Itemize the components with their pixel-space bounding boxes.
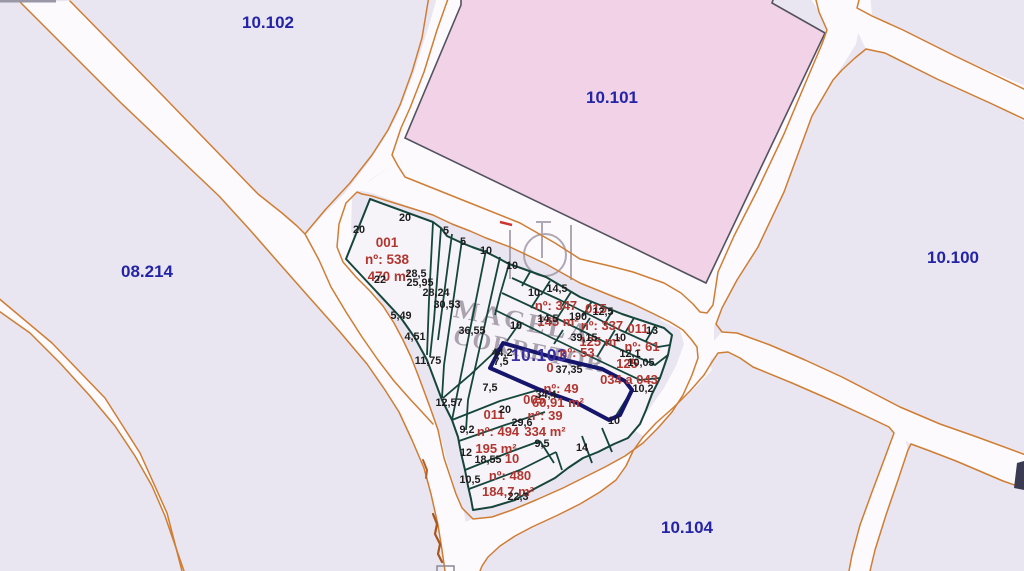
svg-text:9,2: 9,2 <box>459 424 474 436</box>
svg-text:10,2: 10,2 <box>632 383 653 395</box>
svg-text:10: 10 <box>614 332 626 344</box>
svg-text:13: 13 <box>646 325 658 337</box>
svg-text:0: 0 <box>546 360 553 375</box>
svg-text:10: 10 <box>480 245 492 257</box>
svg-text:20: 20 <box>353 224 365 236</box>
svg-text:30,53: 30,53 <box>433 299 460 311</box>
svg-text:22: 22 <box>374 274 386 286</box>
svg-text:10,5: 10,5 <box>459 474 480 486</box>
svg-text:22,3: 22,3 <box>507 491 528 503</box>
svg-text:10: 10 <box>510 320 522 332</box>
svg-text:29,6: 29,6 <box>511 417 532 429</box>
svg-text:10: 10 <box>505 451 519 466</box>
svg-text:10.104: 10.104 <box>661 518 714 537</box>
svg-text:12,57: 12,57 <box>435 397 462 409</box>
svg-text:20: 20 <box>399 212 411 224</box>
svg-text:20: 20 <box>499 404 511 416</box>
svg-text:08.214: 08.214 <box>121 262 174 281</box>
svg-text:10.101: 10.101 <box>586 88 638 107</box>
svg-text:14: 14 <box>576 442 588 454</box>
svg-text:5: 5 <box>443 225 449 237</box>
svg-text:18,55: 18,55 <box>474 454 501 466</box>
svg-text:10: 10 <box>528 287 540 299</box>
svg-text:4,51: 4,51 <box>404 331 425 343</box>
svg-text:11,75: 11,75 <box>415 355 441 367</box>
svg-text:10: 10 <box>608 415 620 427</box>
svg-text:nº: 53: nº: 53 <box>559 345 594 360</box>
svg-text:nº: 39: nº: 39 <box>527 408 562 423</box>
svg-text:14,5: 14,5 <box>537 313 558 325</box>
svg-text:nº: 337: nº: 337 <box>581 318 623 333</box>
svg-text:5: 5 <box>460 236 466 248</box>
svg-text:9,5: 9,5 <box>534 438 549 450</box>
svg-text:10.100: 10.100 <box>927 248 979 267</box>
svg-text:7,5: 7,5 <box>482 382 497 394</box>
svg-text:28,24: 28,24 <box>422 287 449 299</box>
svg-text:001: 001 <box>376 235 399 250</box>
svg-text:190: 190 <box>569 311 587 323</box>
svg-text:39,15: 39,15 <box>570 332 597 344</box>
svg-text:12,5: 12,5 <box>592 306 613 318</box>
svg-text:10,05: 10,05 <box>627 357 654 369</box>
svg-text:7,5: 7,5 <box>493 356 508 368</box>
svg-text:36,55: 36,55 <box>458 325 485 337</box>
svg-text:14,5: 14,5 <box>546 283 567 295</box>
svg-text:10: 10 <box>506 260 518 272</box>
svg-text:37,35: 37,35 <box>555 364 582 376</box>
svg-text:nº: 538: nº: 538 <box>365 252 409 267</box>
svg-text:10.102: 10.102 <box>242 13 294 32</box>
svg-text:nº: 480: nº: 480 <box>489 468 531 483</box>
svg-text:12: 12 <box>460 447 472 459</box>
svg-text:5,49: 5,49 <box>390 310 411 322</box>
svg-text:34,4: 34,4 <box>535 389 556 401</box>
